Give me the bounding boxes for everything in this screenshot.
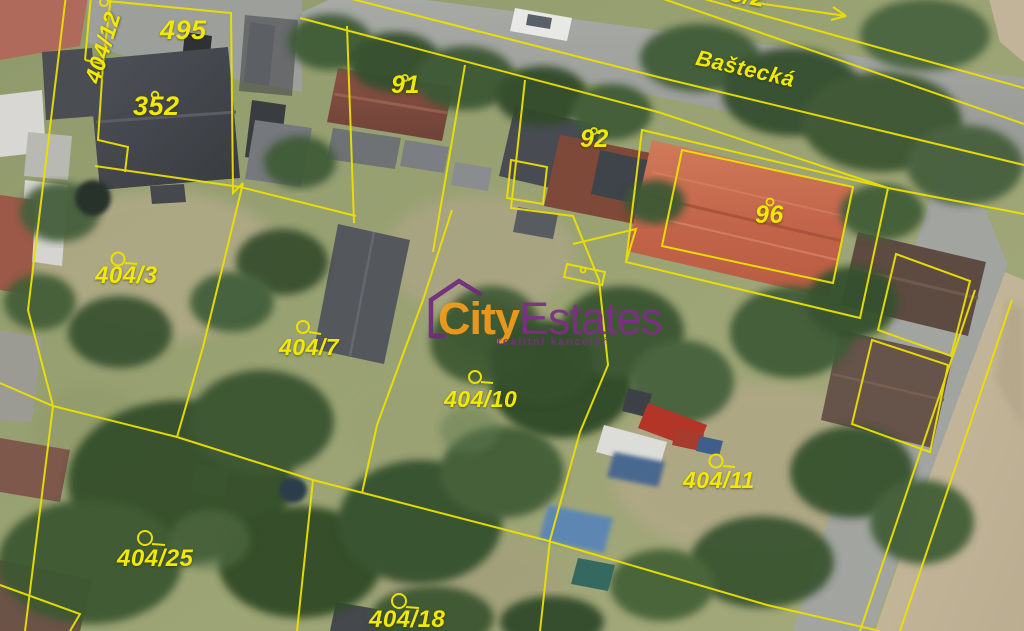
parcel-label-404-7: 404/7 <box>279 336 339 359</box>
parcel-label-352: 352 <box>133 93 180 120</box>
brand-wordmark: CityEstates <box>438 296 662 341</box>
parcel-label-404-18: 404/18 <box>369 608 445 631</box>
parcel-label-91: 91 <box>391 73 420 98</box>
parcel-label-404-11: 404/11 <box>683 469 755 492</box>
cityestates-watermark: CityEstates realitní kancelář <box>415 266 645 356</box>
parcel-label-404-25: 404/25 <box>117 547 193 571</box>
parcel-label-495: 495 <box>160 17 207 44</box>
parcel-label-92: 92 <box>580 127 609 152</box>
parcel-label-404-10: 404/10 <box>444 388 517 411</box>
parcel-label-404-3: 404/3 <box>95 264 158 288</box>
map-canvas: 404/12 495 352 91 92 96 404/3 404/7 404/… <box>0 0 1024 631</box>
brand-tagline: realitní kancelář <box>497 336 608 348</box>
parcel-label-96: 96 <box>755 203 784 228</box>
